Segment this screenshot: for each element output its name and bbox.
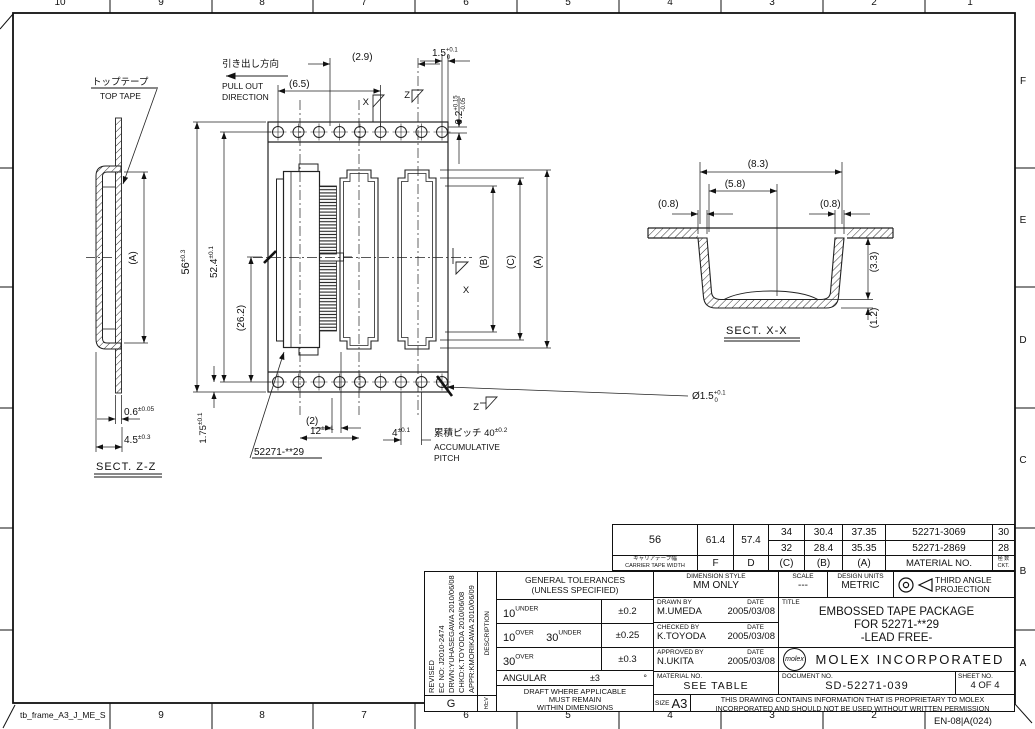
dim-52.4: 52.4±0.1 bbox=[208, 246, 220, 278]
proprietary-note: THIS DRAWING CONTAINS INFORMATION THAT I… bbox=[690, 694, 1015, 712]
f-value: 61.4 bbox=[697, 524, 734, 556]
pocket-3 bbox=[398, 170, 436, 349]
tolerance-value-1: ±0.2 bbox=[601, 599, 654, 624]
dim-26.2: (26.2) bbox=[236, 305, 247, 331]
title-block: REVISED EC NO: J2010-2474 DRWN:YUHASEGAW… bbox=[424, 571, 1015, 712]
frame-form-number: EN-08|A(024) bbox=[934, 716, 992, 727]
drawing-sheet: { "frame": { "name": "tb_frame_A3_J_ME_S… bbox=[0, 0, 1035, 729]
pin-comb-lower bbox=[320, 261, 337, 331]
section-marks bbox=[373, 90, 497, 409]
dim-6.5: (6.5) bbox=[289, 79, 310, 90]
pin-comb-upper bbox=[320, 186, 337, 254]
pocket-cross-section bbox=[698, 238, 844, 308]
ckt-header: 極 数 CKT. bbox=[992, 555, 1015, 571]
parts-table: 56 61.4 57.4 34 30.4 37.35 52271-3069 30… bbox=[612, 524, 1015, 571]
dim-c: (C) bbox=[506, 255, 517, 269]
mark-x-mid: X bbox=[463, 285, 470, 296]
revision-description: REVISED EC NO: J2010-2474 DRWN:YUHASEGAW… bbox=[424, 571, 478, 696]
a-value-row1: 37.35 bbox=[842, 524, 886, 541]
revision-letter: G bbox=[424, 695, 478, 712]
dim-hole-dia: Ø1.5+0.10 bbox=[692, 391, 726, 405]
carrier-width-header: キャリアテープ幅 CARRIER TAPE WIDTH bbox=[612, 555, 698, 571]
d-value: 57.4 bbox=[733, 524, 769, 556]
b-value-row1: 30.4 bbox=[804, 524, 843, 541]
dim-0.2: 0.2+0.15-0.05 bbox=[454, 95, 468, 125]
tolerance-range-3: 30OVER bbox=[496, 647, 602, 671]
mark-x-top: X bbox=[363, 97, 370, 108]
mark-z-top: Z bbox=[404, 90, 410, 101]
tolerance-title: GENERAL TOLERANCES (UNLESS SPECIFIED) bbox=[496, 571, 654, 600]
c-header: (C) bbox=[768, 555, 805, 571]
carrier-width-value: 56 bbox=[612, 524, 698, 556]
dimension-style-cell: DIMENSION STYLE MM ONLY bbox=[653, 571, 779, 598]
dim-a: (A) bbox=[533, 255, 544, 268]
part-number-callout: 52271-**29 bbox=[254, 447, 304, 458]
sprocket-holes bbox=[270, 124, 451, 391]
c-value-row1: 34 bbox=[768, 524, 805, 541]
molex-logo-icon: molex bbox=[783, 648, 806, 671]
zone-bottom: 9 bbox=[146, 710, 176, 721]
description-column-header: DESCRIPTION bbox=[477, 571, 497, 696]
zone-top: 10 bbox=[45, 0, 75, 8]
dim-8.3: (8.3) bbox=[748, 159, 769, 170]
size-cell: SIZE A3 bbox=[653, 694, 691, 712]
dim-56: 56±0.3 bbox=[180, 249, 192, 274]
projection-cell: THIRD ANGLE PROJECTION bbox=[893, 571, 1015, 598]
pull-out-en1: PULL OUT bbox=[222, 81, 263, 91]
tolerance-value-2: ±0.25 bbox=[601, 623, 654, 648]
top-tape-label-jp: トップテープ bbox=[92, 77, 149, 88]
dim-1.2: (1.2) bbox=[869, 308, 880, 329]
pull-out-en2: DIRECTION bbox=[222, 92, 269, 102]
connector bbox=[277, 164, 353, 355]
approved-by-cell: APPROVED BYDATE N.UKITA2005/03/08 bbox=[653, 647, 779, 672]
tolerance-note: DRAFT WHERE APPLICABLE MUST REMAIN WITHI… bbox=[496, 685, 654, 712]
material-no-cell: MATERIAL NO. SEE TABLE bbox=[653, 671, 779, 695]
drawing-title-line3: -LEAD FREE- bbox=[779, 632, 1014, 645]
dim-12: 12±0.1 bbox=[310, 425, 334, 437]
tolerance-range-2: 10OVER 30UNDER bbox=[496, 623, 602, 648]
dim-1.5: 1.5+0.10 bbox=[432, 48, 458, 62]
title-cell: TITLE EMBOSSED TAPE PACKAGE FOR 52271-**… bbox=[778, 597, 1015, 648]
f-header: F bbox=[697, 555, 734, 571]
section-xx-label: SECT. X-X bbox=[726, 325, 788, 337]
frame-template-name: tb_frame_A3_J_ME_S bbox=[20, 710, 106, 720]
dim-1.75: 1.75±0.1 bbox=[197, 412, 209, 443]
third-angle-projection-icon bbox=[897, 576, 935, 594]
dim-accumulative-pitch: 累積ピッチ 40±0.2 bbox=[434, 427, 508, 439]
checked-by-cell: CHECKED BYDATE K.TOYODA2005/03/08 bbox=[653, 622, 779, 648]
dim-0.8-right: (0.8) bbox=[820, 199, 841, 210]
left-dim-lines bbox=[193, 122, 271, 408]
section-xx-view: (8.3) (5.8) (0.8) (0.8) (3.3) (1.2) SECT… bbox=[648, 159, 893, 341]
company-name: MOLEX INCORPORATED bbox=[806, 652, 1014, 667]
material-header: MATERIAL NO. bbox=[885, 555, 993, 571]
sheet-no-cell: SHEET NO. 4 OF 4 bbox=[955, 671, 1015, 695]
tolerance-angular: ANGULAR ±3 ° bbox=[496, 670, 654, 686]
company-cell: molex MOLEX INCORPORATED bbox=[778, 647, 1015, 672]
accumulative-label-2: PITCH bbox=[434, 453, 460, 463]
drawing-title-line2: FOR 52271-**29 bbox=[779, 619, 1014, 632]
dim-5.8: (5.8) bbox=[725, 179, 746, 190]
document-no-cell: DOCUMENT NO. SD-52271-039 bbox=[778, 671, 956, 695]
dim-4.5: 4.5±0.3 bbox=[124, 434, 151, 446]
accumulative-label-1: ACCUMULATIVE bbox=[434, 442, 500, 452]
dim-2.9: (2.9) bbox=[352, 52, 373, 63]
dim-3.3: (3.3) bbox=[869, 252, 880, 273]
ckt-row1: 30 bbox=[992, 524, 1015, 541]
scale-cell: SCALE --- bbox=[778, 571, 828, 598]
tape-plan-view: X Z X Z 引き出し方向 PULL OUT DIRECTION 56±0.3… bbox=[180, 48, 726, 464]
b-header: (B) bbox=[804, 555, 843, 571]
zone-right: F bbox=[1008, 76, 1035, 87]
material-row1: 52271-3069 bbox=[885, 524, 993, 541]
dim-0.8-left: (0.8) bbox=[658, 199, 679, 210]
section-zz-label: SECT. Z-Z bbox=[96, 461, 156, 473]
rev-column-header: REV bbox=[477, 695, 497, 712]
drawing-title-line1: EMBOSSED TAPE PACKAGE bbox=[779, 606, 1014, 619]
tolerance-range-1: 10UNDER bbox=[496, 599, 602, 624]
tolerance-value-3: ±0.3 bbox=[601, 647, 654, 671]
section-zz-view: (A) 0.6±0.05 4.5±0.3 SECT. Z-Z トップテープ TO… bbox=[86, 77, 162, 477]
d-header: D bbox=[733, 555, 769, 571]
dim-0.6: 0.6±0.05 bbox=[124, 406, 155, 418]
top-tape-strip bbox=[116, 118, 122, 393]
top-tape-label-en: TOP TAPE bbox=[100, 91, 141, 101]
mark-z-bottom: Z bbox=[473, 402, 479, 413]
dim-a-left: (A) bbox=[128, 251, 139, 264]
tape-outline bbox=[268, 122, 448, 392]
a-header: (A) bbox=[842, 555, 886, 571]
top-dim-lines bbox=[278, 54, 470, 164]
drawn-by-cell: DRAWN BYDATE M.UMEDA2005/03/08 bbox=[653, 597, 779, 623]
design-units-cell: DESIGN UNITS METRIC bbox=[827, 571, 894, 598]
dim-b: (B) bbox=[479, 255, 490, 268]
centerlines bbox=[253, 58, 472, 415]
pull-out-jp: 引き出し方向 bbox=[222, 58, 279, 70]
